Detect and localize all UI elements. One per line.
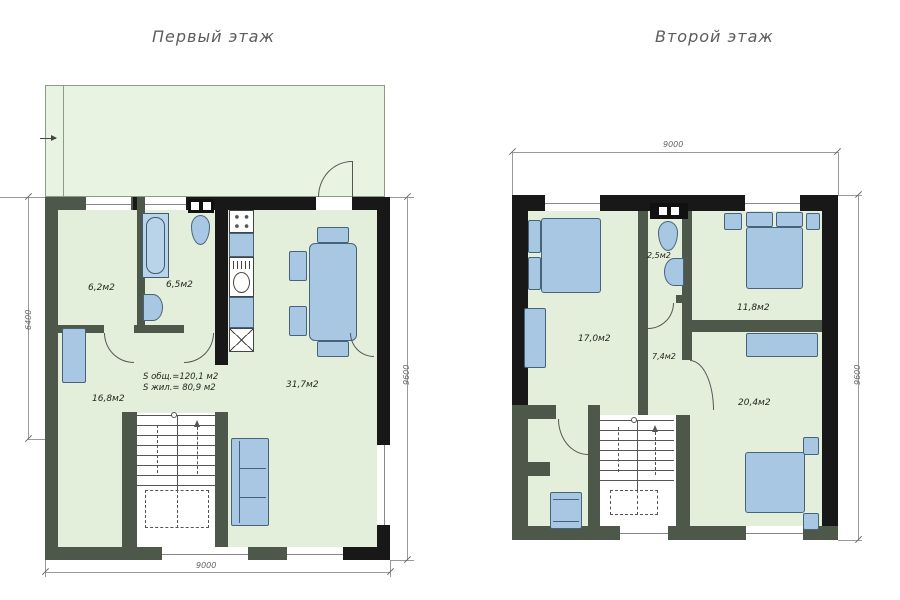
bed	[541, 218, 601, 293]
pillow	[528, 220, 541, 253]
stair-up-arrow-icon	[655, 427, 656, 475]
partition	[692, 320, 822, 332]
pillow	[528, 257, 541, 290]
room-label: 7,4м2	[652, 352, 676, 361]
room-label: 11,8м2	[737, 303, 770, 313]
pillow	[776, 212, 803, 227]
nightstand	[803, 513, 819, 530]
room-label: 17,0м2	[578, 334, 611, 344]
toilet-cistern	[650, 203, 688, 219]
partition	[588, 405, 600, 540]
wall	[512, 195, 528, 410]
bed	[745, 452, 805, 513]
stair-dashed-line	[637, 490, 638, 515]
dimension-line	[512, 152, 838, 153]
partition	[512, 462, 550, 476]
partition	[682, 335, 692, 360]
nightstand	[724, 213, 742, 230]
window	[745, 195, 800, 211]
window	[545, 195, 600, 211]
nightstand	[806, 213, 820, 230]
stair-divider	[637, 420, 638, 490]
extension-line	[838, 152, 839, 195]
partition	[638, 211, 648, 415]
nightstand	[803, 437, 819, 455]
window	[620, 526, 668, 540]
partition	[512, 405, 556, 419]
floor2-title: Второй этаж	[655, 27, 774, 46]
wardrobe	[524, 308, 546, 368]
partition	[676, 415, 690, 526]
extension-line	[512, 152, 513, 195]
window	[746, 526, 803, 540]
wall	[822, 195, 838, 540]
stair-dashed-line	[618, 427, 619, 472]
room-label: 2,5м2	[647, 251, 671, 260]
stair-dashed-run	[610, 490, 658, 515]
floor2-plan: Второй этаж	[0, 0, 900, 600]
dresser	[746, 333, 818, 357]
pillow	[746, 212, 773, 227]
bed	[746, 227, 803, 289]
room-label: 20,4м2	[738, 398, 771, 408]
washbasin	[664, 258, 684, 286]
dimension-label: 9000	[663, 140, 683, 149]
dimension-label: 9600	[853, 365, 862, 385]
armchair	[550, 492, 582, 529]
stair-start-marker	[631, 417, 637, 423]
